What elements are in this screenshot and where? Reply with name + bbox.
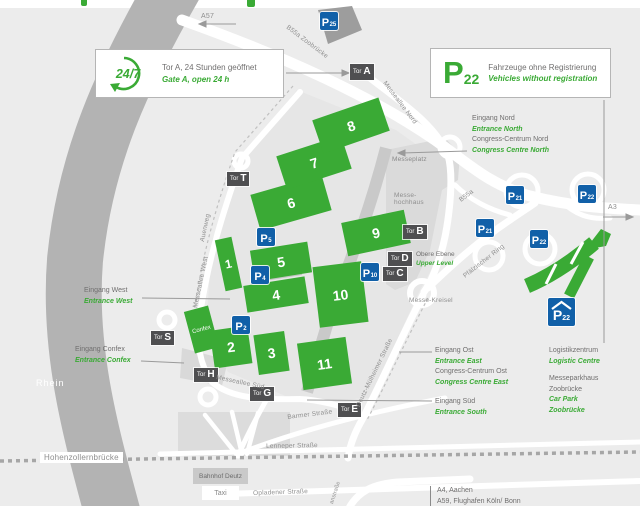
place-label-messe-kreisel: Messe-Kreisel xyxy=(409,297,453,304)
p-number: 25 xyxy=(330,22,337,28)
label-car-park-zoobruecke: Messeparkhaus Zoobrücke Car Park Zoobrüc… xyxy=(549,374,598,416)
parking-p22-badge: P22 xyxy=(578,185,596,203)
gate-prefix: Tor xyxy=(386,271,394,277)
congress-centrum-ost-de: Congress-Centrum Ost xyxy=(435,367,508,378)
hall-number: 11 xyxy=(316,355,333,373)
logistikzentrum-de: Logistikzentrum xyxy=(549,346,600,357)
hall-number: 7 xyxy=(308,154,320,172)
p-letter: P xyxy=(363,269,370,279)
label-entrance-east: Eingang Ost Entrance East Congress-Centr… xyxy=(435,346,508,388)
gate-letter: G xyxy=(263,389,271,399)
legend-p22-text: Fahrzeuge ohne Registrierung Vehicles wi… xyxy=(488,62,597,85)
entrance-south-de: Eingang Süd xyxy=(435,397,487,408)
hall-number: 10 xyxy=(332,286,349,304)
zoobruecke-en: Zoobrücke xyxy=(549,406,598,417)
congress-centre-east-en: Congress Centre East xyxy=(435,378,508,389)
gate-prefix: Tor xyxy=(341,407,349,413)
gate-h-badge: TorH xyxy=(194,368,218,382)
gate-letter: S xyxy=(164,333,171,343)
gate-prefix: Tor xyxy=(253,391,261,397)
label-logistic-centre: Logistikzentrum Logistic Centre xyxy=(549,346,600,367)
place-label-messeplatz: Messeplatz xyxy=(392,156,427,163)
entrance-confex-de: Eingang Confex xyxy=(75,345,131,356)
p-number: 22 xyxy=(464,74,480,85)
label-entrance-west: Eingang West Entrance West xyxy=(84,286,133,307)
hall-number: 3 xyxy=(267,345,277,362)
gate-d-badge: TorD xyxy=(388,252,412,266)
river-label-rhein: Rhein xyxy=(36,378,65,388)
hall-number: 1 xyxy=(224,256,233,271)
street-label-a57: A57 xyxy=(201,13,214,20)
parking-p21-badge: P21 xyxy=(506,186,524,204)
p-number: 4 xyxy=(262,276,265,282)
place-label-messehochhaus: Messe-hochhaus xyxy=(394,192,424,206)
gate-hours-de: Tor A, 24 Stunden geöffnet xyxy=(162,62,257,74)
p-letter: P xyxy=(478,225,485,235)
hall-number: 8 xyxy=(345,117,358,135)
messehochhaus-line2: hochhaus xyxy=(394,199,424,206)
p-letter: P xyxy=(508,192,515,202)
label-motorway-destinations: A4, Aachen A59, Flughafen Köln/ Bonn xyxy=(430,486,521,506)
gate-letter: C xyxy=(396,269,403,279)
gate-prefix: Tor xyxy=(353,69,361,75)
entrance-east-de: Eingang Ost xyxy=(435,346,508,357)
p22-de: Fahrzeuge ohne Registrierung xyxy=(488,62,597,74)
p-number: 5 xyxy=(268,238,271,244)
entrance-east-en: Entrance East xyxy=(435,357,508,368)
entrance-confex-en: Entrance Confex xyxy=(75,356,131,367)
gate-t-badge: TorT xyxy=(227,172,249,186)
gate-prefix: Tor xyxy=(230,176,238,182)
gate-hours-en: Gate A, open 24 h xyxy=(162,74,257,86)
gate-prefix: Tor xyxy=(197,372,205,378)
gate-letter: A xyxy=(363,67,370,77)
p-letter: P xyxy=(235,322,242,332)
confex-label: Confex xyxy=(192,324,212,335)
gate-letter: D xyxy=(401,254,408,264)
bahnhof-deutz-box: Bahnhof Deutz xyxy=(193,468,248,484)
parking-p25-badge: P25 xyxy=(320,12,338,30)
street-label-a3: A3 xyxy=(608,204,617,211)
p-number: 22 xyxy=(562,315,570,322)
entrance-north-de: Eingang Nord xyxy=(472,114,549,125)
obere-ebene-en: Upper Level xyxy=(416,260,455,269)
p-number: 21 xyxy=(516,196,523,202)
gate-letter: E xyxy=(351,405,358,415)
parking-p21-badge: P21 xyxy=(476,219,494,237)
parking-p10-badge: P10 xyxy=(361,263,379,281)
open-24-7-icon: 24/7 xyxy=(104,53,154,95)
gate-prefix: Tor xyxy=(154,335,162,341)
parking-p2-badge: P2 xyxy=(232,316,250,334)
p-number: 2 xyxy=(243,326,246,332)
gate-prefix: Tor xyxy=(406,229,414,235)
street-label-lenneper: Lenneper Straße xyxy=(266,442,318,450)
entrance-south-en: Entrance South xyxy=(435,408,487,419)
p-number: 21 xyxy=(486,229,493,235)
hall-11: 11 xyxy=(297,337,352,390)
p-number: 22 xyxy=(540,240,547,246)
car-park-p22-badge: P22 xyxy=(548,298,575,326)
bridge-label-hohenzollernbruecke: Hohenzollernbrücke xyxy=(40,452,123,463)
entrance-west-de: Eingang West xyxy=(84,286,133,297)
gate-prefix: Tor xyxy=(391,256,399,262)
gate-c-badge: TorC xyxy=(383,267,407,281)
taxi-box: Taxi xyxy=(202,486,239,500)
zoobruecke-de: Zoobrücke xyxy=(549,385,598,396)
legend-gate-text: Tor A, 24 Stunden geöffnet Gate A, open … xyxy=(162,62,257,85)
parking-p5-badge: P5 xyxy=(257,228,275,246)
gate-s-badge: TorS xyxy=(151,331,174,345)
hall-number: 4 xyxy=(271,286,281,303)
entrance-west-en: Entrance West xyxy=(84,297,133,308)
p22-sign: P 22 xyxy=(443,61,479,85)
parking-p22-badge: P22 xyxy=(530,230,548,248)
messe-site-map: 1 2 3 4 5 6 7 8 9 10 11 Confex TorA TorT… xyxy=(0,0,640,506)
entrance-north-en: Entrance North xyxy=(472,125,549,136)
hall-number: 5 xyxy=(276,253,286,270)
gate-b-badge: TorB xyxy=(403,225,427,239)
label-upper-level: Obere Ebene Upper Level xyxy=(416,251,455,268)
p-number: 10 xyxy=(371,273,378,279)
car-park-label: P22 xyxy=(553,309,570,322)
gate-letter: H xyxy=(207,370,214,380)
label-entrance-south: Eingang Süd Entrance South xyxy=(435,397,487,418)
p-letter: P xyxy=(254,272,261,282)
p-letter: P xyxy=(322,18,329,28)
messeparkhaus-de: Messeparkhaus xyxy=(549,374,598,385)
congress-centrum-nord-de: Congress-Centrum Nord xyxy=(472,135,549,146)
obere-ebene-de: Obere Ebene xyxy=(416,251,455,260)
gate-a-badge: TorA xyxy=(350,64,374,80)
gate-letter: B xyxy=(416,227,423,237)
p-letter: P xyxy=(580,191,587,201)
hours-badge-text: 24/7 xyxy=(115,67,141,81)
p-letter: P xyxy=(532,236,539,246)
label-entrance-north: Eingang Nord Entrance North Congress-Cen… xyxy=(472,114,549,156)
parking-p4-badge: P4 xyxy=(251,266,269,284)
p22-en: Vehicles without registration xyxy=(488,73,597,85)
messehochhaus-line1: Messe- xyxy=(394,192,417,199)
p-letter: P xyxy=(260,234,267,244)
p-letter: P xyxy=(553,309,562,322)
hall-3: 3 xyxy=(253,331,289,375)
hall-number: 9 xyxy=(371,224,382,241)
legend-gate-hours: 24/7 Tor A, 24 Stunden geöffnet Gate A, … xyxy=(95,49,284,98)
p-number: 22 xyxy=(588,195,595,201)
congress-centre-north-en: Congress Centre North xyxy=(472,146,549,157)
label-entrance-confex: Eingang Confex Entrance Confex xyxy=(75,345,131,366)
hall-number: 2 xyxy=(226,339,236,356)
legend-p22: P 22 Fahrzeuge ohne Registrierung Vehicl… xyxy=(430,48,611,98)
logistic-centre-en: Logistic Centre xyxy=(549,357,600,368)
car-park-en: Car Park xyxy=(549,395,598,406)
destination-a4: A4, Aachen xyxy=(437,486,521,497)
gate-letter: T xyxy=(240,174,246,184)
hall-number: 6 xyxy=(285,194,297,212)
destination-a59: A59, Flughafen Köln/ Bonn xyxy=(437,497,521,506)
p-letter: P xyxy=(443,61,464,85)
